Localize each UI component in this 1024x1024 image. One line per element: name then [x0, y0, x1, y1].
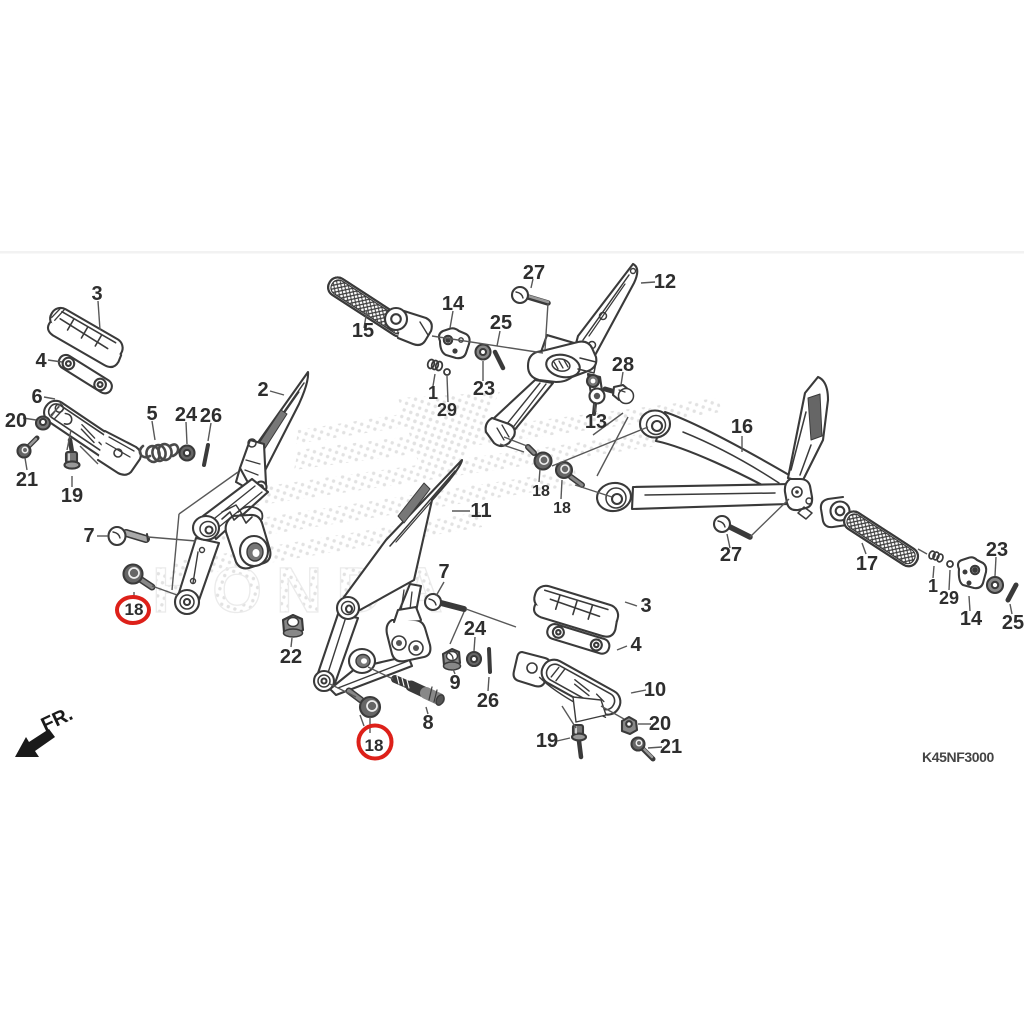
- svg-text:28: 28: [612, 354, 634, 376]
- svg-text:23: 23: [473, 378, 495, 400]
- svg-text:18: 18: [553, 500, 571, 517]
- svg-text:3: 3: [640, 595, 651, 617]
- svg-text:20: 20: [649, 713, 671, 735]
- svg-text:26: 26: [477, 690, 499, 712]
- svg-text:19: 19: [536, 730, 558, 752]
- svg-text:1: 1: [928, 576, 938, 596]
- svg-text:3: 3: [91, 283, 102, 305]
- svg-text:15: 15: [352, 320, 374, 342]
- svg-text:24: 24: [464, 618, 487, 640]
- svg-text:20: 20: [5, 410, 27, 432]
- svg-text:9: 9: [449, 672, 460, 694]
- svg-text:2: 2: [257, 379, 268, 401]
- svg-text:19: 19: [61, 485, 83, 507]
- svg-text:29: 29: [437, 400, 457, 420]
- svg-text:17: 17: [856, 553, 878, 575]
- svg-text:22: 22: [280, 646, 302, 668]
- svg-text:21: 21: [660, 736, 682, 758]
- svg-text:27: 27: [720, 544, 742, 566]
- svg-text:10: 10: [644, 679, 666, 701]
- svg-text:K45NF3000: K45NF3000: [922, 749, 995, 765]
- svg-text:6: 6: [31, 386, 42, 408]
- svg-text:16: 16: [731, 416, 753, 438]
- svg-text:18: 18: [532, 483, 550, 500]
- svg-text:25: 25: [1002, 612, 1024, 634]
- svg-text:7: 7: [438, 561, 449, 583]
- svg-text:14: 14: [442, 293, 465, 315]
- svg-text:23: 23: [986, 539, 1008, 561]
- svg-text:27: 27: [523, 262, 545, 284]
- svg-text:12: 12: [654, 271, 676, 293]
- svg-text:5: 5: [146, 403, 157, 425]
- svg-text:24: 24: [175, 404, 198, 426]
- svg-text:29: 29: [939, 588, 959, 608]
- svg-text:13: 13: [585, 411, 607, 433]
- svg-text:14: 14: [960, 608, 983, 630]
- svg-text:21: 21: [16, 469, 38, 491]
- svg-text:25: 25: [490, 312, 512, 334]
- svg-text:4: 4: [630, 634, 642, 656]
- svg-text:8: 8: [422, 712, 433, 734]
- svg-text:4: 4: [35, 350, 47, 372]
- svg-text:18: 18: [365, 736, 384, 755]
- svg-text:11: 11: [470, 500, 491, 522]
- svg-text:18: 18: [125, 600, 144, 619]
- svg-text:26: 26: [200, 405, 222, 427]
- svg-text:7: 7: [83, 525, 94, 547]
